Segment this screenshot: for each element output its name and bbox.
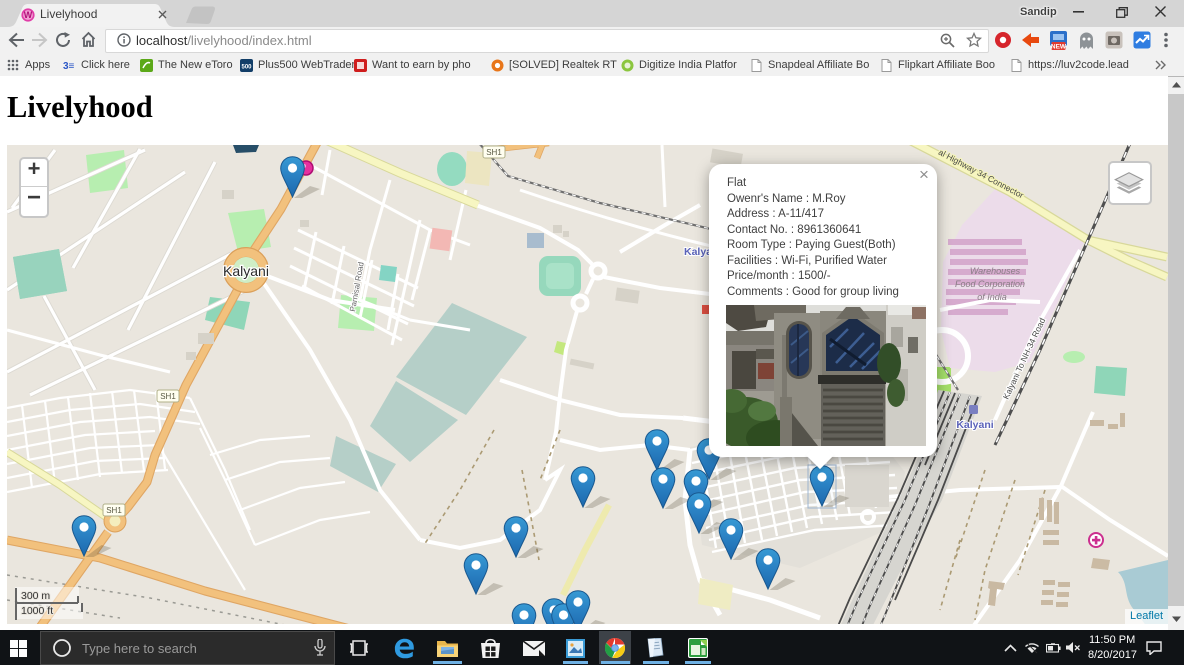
svg-text:of India: of India bbox=[977, 292, 1007, 302]
svg-text:W: W bbox=[24, 10, 33, 20]
svg-text:NEW: NEW bbox=[1051, 44, 1067, 51]
svg-text:300 m: 300 m bbox=[21, 590, 50, 602]
svg-text:Kalyani: Kalyani bbox=[223, 263, 269, 279]
svg-text:SH1: SH1 bbox=[106, 506, 122, 515]
svg-text:SH1: SH1 bbox=[486, 148, 502, 157]
svg-text:Food Corporation: Food Corporation bbox=[955, 279, 1025, 289]
svg-text:3≡: 3≡ bbox=[63, 61, 75, 72]
svg-text:500: 500 bbox=[241, 65, 252, 71]
svg-text:Warehouses: Warehouses bbox=[970, 266, 1021, 276]
svg-text:1000 ft: 1000 ft bbox=[21, 605, 53, 617]
svg-text:SH1: SH1 bbox=[160, 392, 176, 401]
svg-text:Kalyani: Kalyani bbox=[956, 419, 993, 431]
